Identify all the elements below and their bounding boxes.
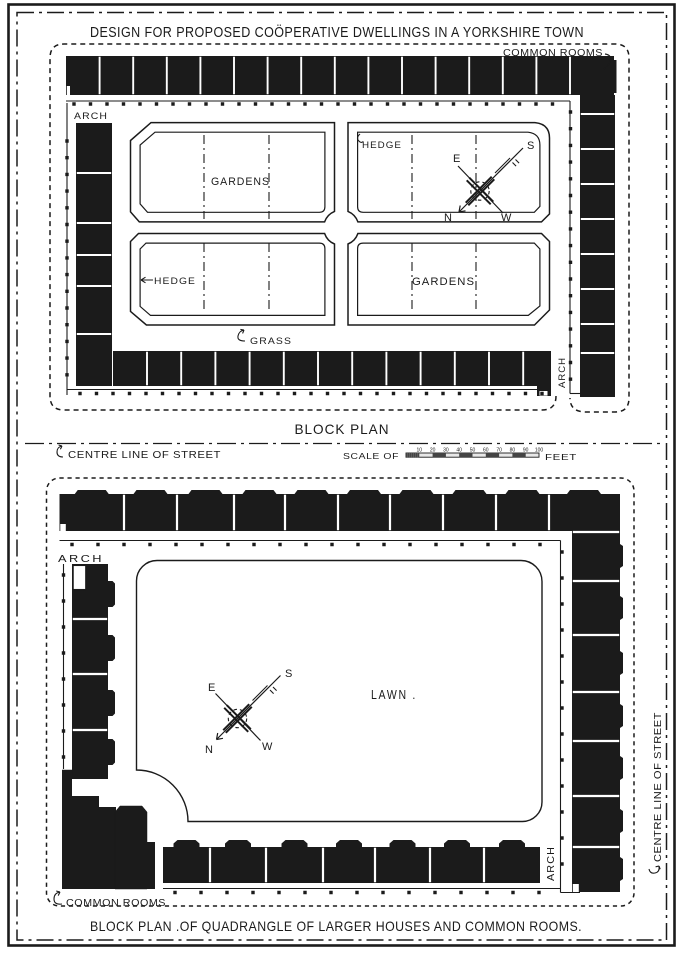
svg-text:N: N <box>205 744 213 756</box>
svg-text:40: 40 <box>456 448 462 454</box>
svg-text:70: 70 <box>496 448 502 454</box>
svg-text:GARDENS: GARDENS <box>412 276 475 288</box>
svg-text:FEET: FEET <box>545 452 577 462</box>
svg-text:50: 50 <box>470 448 476 454</box>
svg-text:30: 30 <box>443 448 449 454</box>
svg-text:HEDGE: HEDGE <box>154 276 196 287</box>
svg-text:ARCH: ARCH <box>58 553 104 565</box>
svg-text:SCALE OF: SCALE OF <box>343 451 399 461</box>
svg-text:BLOCK PLAN .OF QUADRANGLE OF L: BLOCK PLAN .OF QUADRANGLE OF LARGER HOUS… <box>90 918 582 934</box>
svg-text:S: S <box>285 668 292 680</box>
svg-text:GRASS: GRASS <box>250 336 292 347</box>
svg-text:W: W <box>262 741 273 753</box>
svg-text:ARCH: ARCH <box>546 846 557 881</box>
svg-text:DESIGN FOR PROPOSED COÖPERA: DESIGN FOR PROPOSED COÖPERATIVE DWELLING… <box>90 23 584 41</box>
svg-text:N: N <box>444 212 452 224</box>
svg-text:S: S <box>527 140 534 152</box>
svg-text:E: E <box>208 682 215 694</box>
svg-text:60: 60 <box>483 448 489 454</box>
svg-text:BLOCK PLAN: BLOCK PLAN <box>295 421 390 437</box>
svg-text:CENTRE LINE OF STREET: CENTRE LINE OF STREET <box>68 449 221 461</box>
svg-text:ARCH: ARCH <box>74 111 108 122</box>
svg-text:LAWN .: LAWN . <box>371 688 417 702</box>
svg-text:90: 90 <box>523 448 529 454</box>
svg-text:CENTRE LINE OF STREET: CENTRE LINE OF STREET <box>652 712 664 862</box>
svg-text:100: 100 <box>535 448 544 454</box>
svg-text:COMMON ROOMS: COMMON ROOMS <box>503 47 603 59</box>
svg-text:10: 10 <box>417 448 423 454</box>
svg-text:HEDGE: HEDGE <box>362 140 402 151</box>
svg-text:GARDENS: GARDENS <box>211 176 270 188</box>
svg-text:20: 20 <box>430 448 436 454</box>
svg-text:80: 80 <box>510 448 516 454</box>
svg-text:ARCH: ARCH <box>557 357 568 388</box>
svg-text:COMMON ROOMS: COMMON ROOMS <box>66 897 166 909</box>
svg-text:W: W <box>501 212 512 224</box>
svg-text:E: E <box>453 153 460 165</box>
